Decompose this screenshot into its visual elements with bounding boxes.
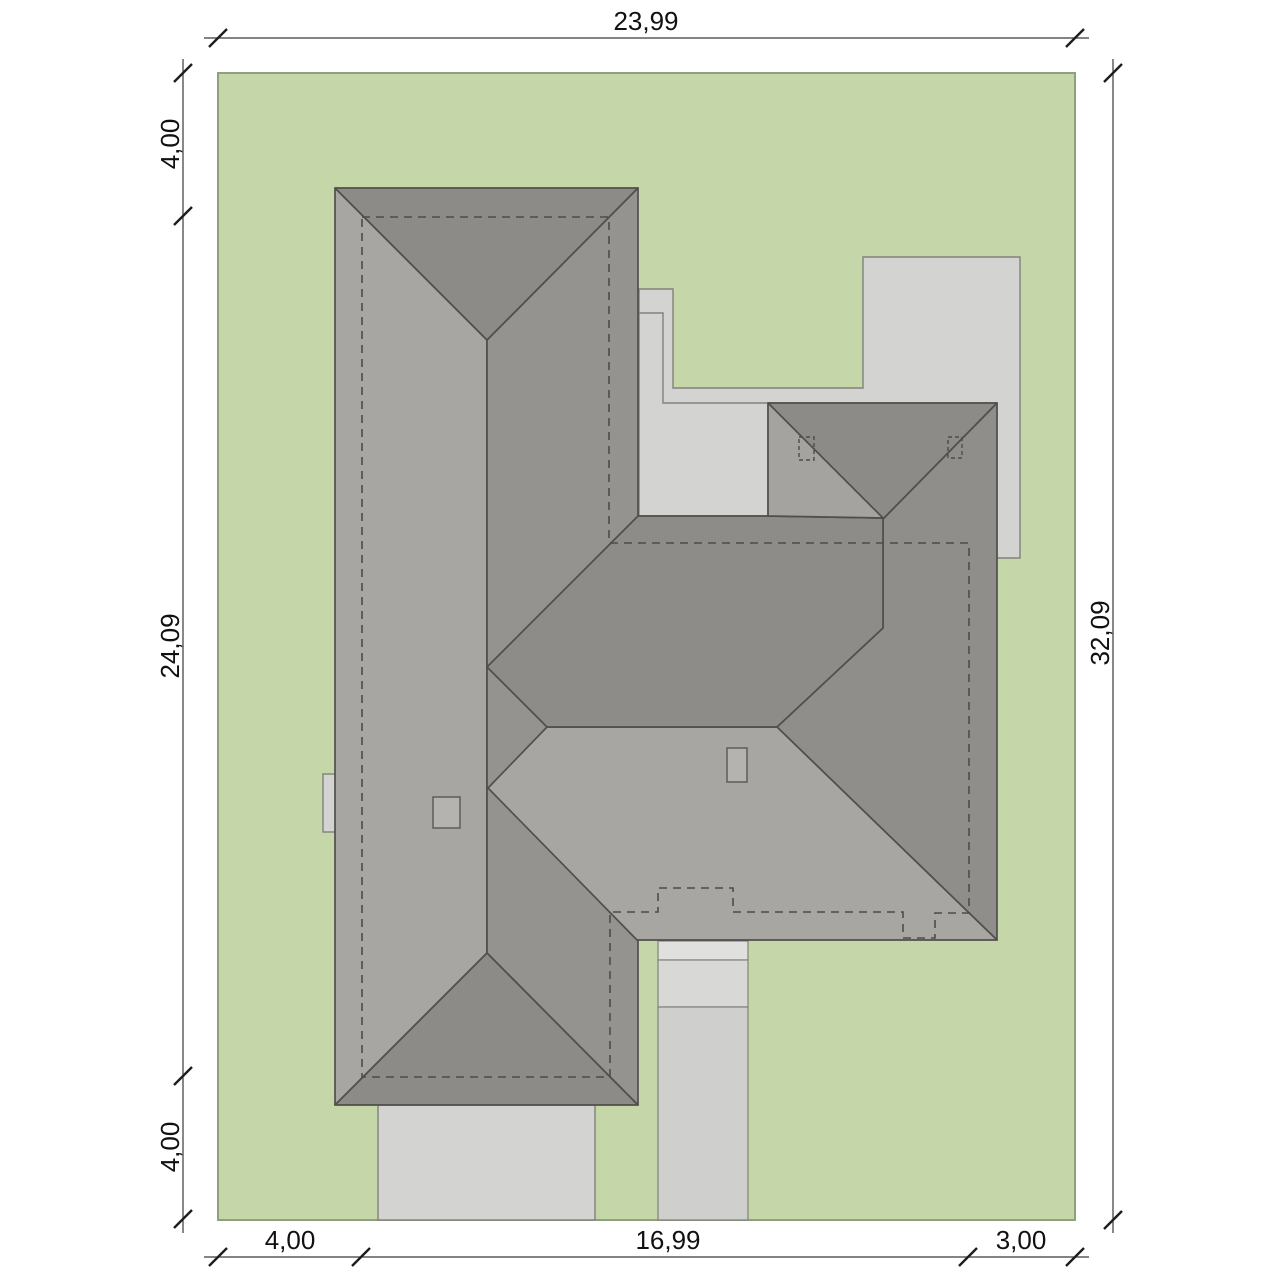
- chimney-center: [727, 748, 747, 782]
- roof-left-west-slope: [335, 188, 487, 1105]
- dim-label-left-house-length: 24,09: [155, 613, 185, 678]
- dim-label-left-top-setback: 4,00: [155, 119, 185, 170]
- dim-label-right-height: 32,09: [1085, 600, 1115, 665]
- chimney-left: [433, 797, 460, 828]
- dim-label-left-bottom-setback: 4,00: [155, 1122, 185, 1173]
- driveway: [378, 1105, 595, 1220]
- dim-label-bottom-right-setback: 3,00: [996, 1225, 1047, 1255]
- dim-label-bottom-left-setback: 4,00: [265, 1225, 316, 1255]
- entrance-path-step-mid: [658, 960, 748, 1007]
- entrance-path: [658, 941, 748, 1220]
- site-plan-canvas: 23,99 4,00 16,99 3,00 4,00 24,09 4,00 32…: [0, 0, 1280, 1280]
- dim-label-top-width: 23,99: [613, 6, 678, 36]
- entrance-path-step-top: [658, 941, 748, 960]
- dim-label-bottom-house-width: 16,99: [635, 1225, 700, 1255]
- entrance-path-walk: [658, 1007, 748, 1220]
